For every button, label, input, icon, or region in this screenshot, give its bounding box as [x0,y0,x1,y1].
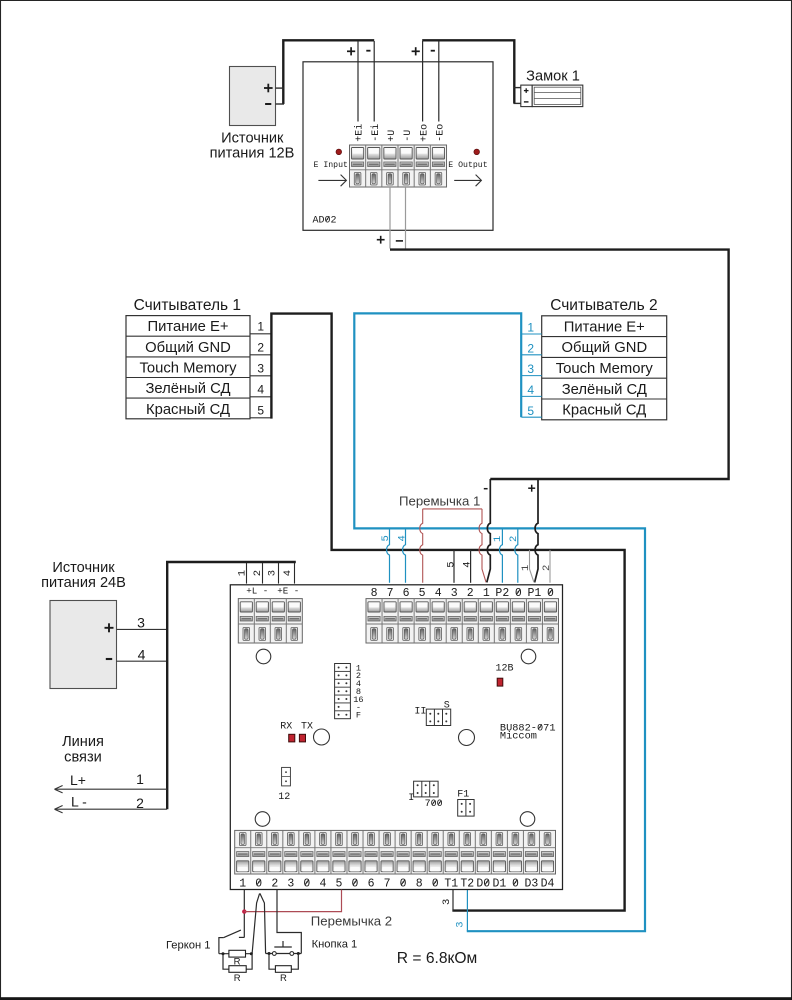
svg-text:D4: D4 [541,877,555,890]
svg-text:+U: +U [387,130,398,142]
svg-text:Считыватель 2: Считыватель 2 [550,297,657,314]
svg-text:5: 5 [257,404,264,418]
svg-text:Кнопка 1: Кнопка 1 [312,938,358,950]
svg-text:TX: TX [301,722,313,733]
svg-text:6: 6 [368,877,375,890]
svg-text:D1: D1 [492,877,506,890]
svg-text:Считыватель 1: Считыватель 1 [134,297,241,314]
svg-text:700: 700 [425,799,443,810]
svg-text:3: 3 [137,614,145,630]
svg-text:0: 0 [352,877,359,890]
svg-text:L -: L - [71,794,87,810]
svg-text:2: 2 [541,565,553,571]
svg-text:R: R [234,973,241,984]
svg-text:2: 2 [508,536,520,542]
svg-text:0: 0 [515,587,522,600]
svg-text:0: 0 [512,877,519,890]
svg-text:Красный СД: Красный СД [562,403,646,419]
svg-text:Источник: Источник [221,130,284,146]
svg-text:1: 1 [237,570,249,576]
svg-text:4: 4 [319,877,326,890]
svg-text:T1: T1 [444,877,458,890]
svg-text:P2: P2 [495,587,509,600]
svg-text:3: 3 [441,899,453,905]
svg-text:2: 2 [271,877,278,890]
svg-text:4: 4 [435,587,442,600]
svg-text:0: 0 [432,877,439,890]
svg-text:Геркон 1: Геркон 1 [166,940,211,952]
svg-text:1: 1 [527,321,534,335]
svg-text:R: R [280,973,287,984]
svg-text:8: 8 [416,877,423,890]
svg-text:12: 12 [278,792,290,803]
svg-text:Перемычка 1: Перемычка 1 [399,493,480,508]
svg-text:D3: D3 [525,877,539,890]
svg-text:3: 3 [267,570,279,576]
svg-text:+E -: +E - [277,585,299,596]
svg-text:Питание E+: Питание E+ [564,319,645,335]
svg-text:2: 2 [467,587,474,600]
svg-text:12В: 12В [496,663,514,674]
svg-text:5: 5 [380,535,392,541]
svg-text:Линия: Линия [62,734,104,750]
svg-text:0: 0 [255,877,262,890]
svg-text:4: 4 [397,535,409,541]
svg-text:4: 4 [257,383,264,397]
svg-text:L+: L+ [70,772,86,788]
svg-text:Красный СД: Красный СД [146,402,230,418]
svg-text:T2: T2 [460,877,474,890]
svg-text:II: II [414,707,426,718]
svg-text:R = 6.8кОм: R = 6.8кОм [397,950,477,967]
svg-text:5: 5 [336,877,343,890]
svg-text:4: 4 [462,561,474,567]
svg-text:Общий GND: Общий GND [561,340,647,356]
svg-text:1: 1 [136,771,144,787]
svg-text:1: 1 [483,587,490,600]
svg-text:4: 4 [138,646,146,662]
svg-text:0: 0 [303,877,310,890]
svg-text:Зелёный СД: Зелёный СД [562,382,647,398]
svg-text:3: 3 [527,362,534,376]
svg-text:3: 3 [451,587,458,600]
svg-text:5: 5 [527,404,534,418]
svg-text:D0: D0 [476,877,490,890]
svg-text:6: 6 [403,587,410,600]
svg-text:Touch Memory: Touch Memory [139,360,237,376]
svg-text:-Eo: -Eo [435,124,446,142]
svg-text:+Ei: +Ei [354,124,366,142]
svg-text:5: 5 [419,587,426,600]
svg-text:2: 2 [252,570,264,576]
svg-text:2: 2 [257,341,264,355]
svg-text:0: 0 [400,877,407,890]
svg-text:1: 1 [520,565,532,571]
svg-text:2: 2 [527,341,534,355]
svg-text:8: 8 [371,587,378,600]
svg-text:-U: -U [403,130,414,142]
svg-text:Touch Memory: Touch Memory [556,361,654,377]
svg-text:AD02: AD02 [313,216,337,227]
svg-text:связи: связи [64,750,102,766]
svg-text:5: 5 [446,561,458,567]
svg-text:1: 1 [492,536,504,542]
svg-text:P1: P1 [528,587,542,600]
svg-text:1: 1 [257,320,264,334]
svg-text:0: 0 [547,587,554,600]
svg-text:Перемычка 2: Перемычка 2 [311,913,392,928]
svg-text:Общий GND: Общий GND [145,340,231,356]
svg-text:Источник: Источник [52,560,115,576]
svg-text:7: 7 [384,877,391,890]
svg-text:питания 12В: питания 12В [210,146,295,162]
svg-text:F1: F1 [457,790,469,801]
svg-text:Miccom: Miccom [500,731,537,743]
svg-text:3: 3 [455,921,467,927]
svg-text:Зелёный СД: Зелёный СД [145,381,230,397]
svg-text:3: 3 [257,362,264,376]
svg-text:E Input: E Input [314,161,348,170]
svg-text:+Eo: +Eo [419,124,430,142]
svg-text:+L -: +L - [246,585,268,596]
svg-text:-Ei: -Ei [370,124,382,142]
svg-text:питания 24В: питания 24В [41,575,126,591]
svg-text:F: F [356,711,361,721]
svg-text:E Output: E Output [448,161,487,170]
svg-text:Замок 1: Замок 1 [526,69,580,85]
svg-text:Питание E+: Питание E+ [147,319,228,335]
svg-text:4: 4 [282,570,294,576]
svg-text:RX: RX [280,722,292,733]
svg-text:1: 1 [239,877,246,890]
svg-text:7: 7 [387,587,394,600]
svg-text:4: 4 [527,383,534,397]
svg-text:3: 3 [287,877,294,890]
